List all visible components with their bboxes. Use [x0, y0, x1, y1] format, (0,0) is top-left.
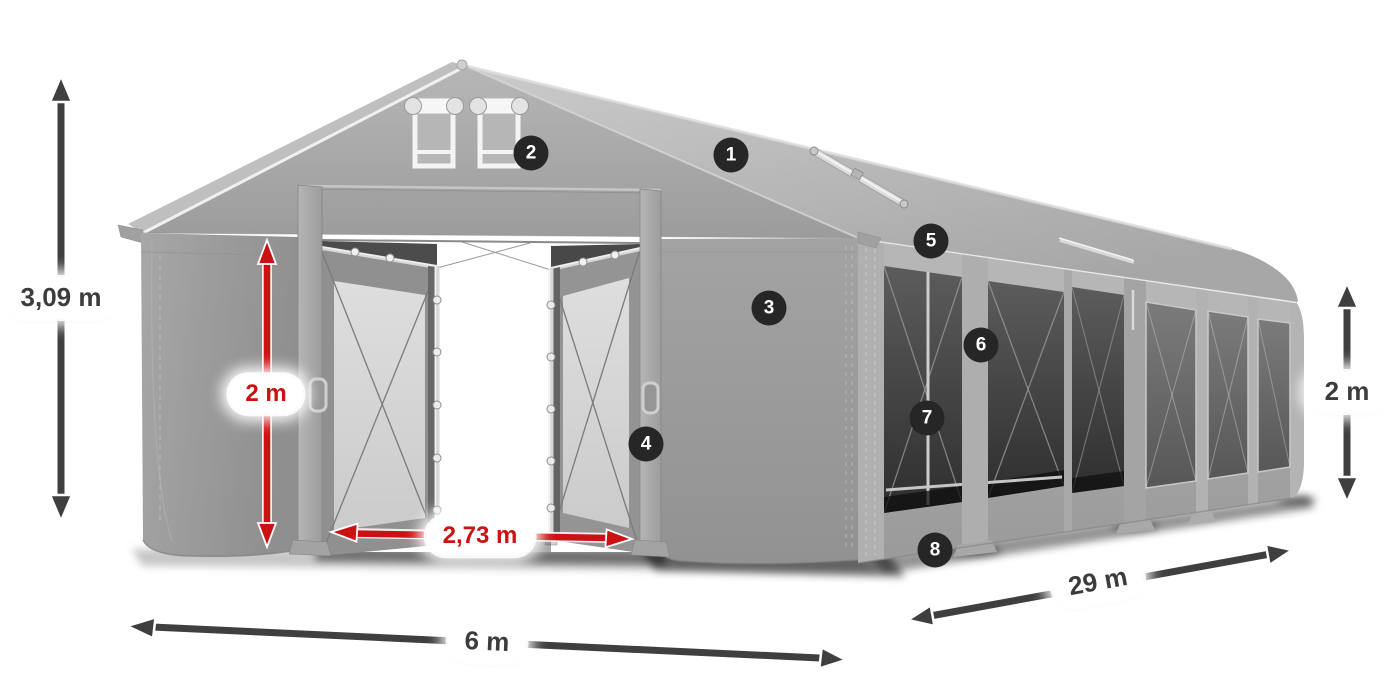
entrance-right-door [545, 247, 640, 553]
side-window [1208, 311, 1248, 479]
part-marker-1[interactable]: 1 [714, 138, 749, 173]
tent-product-view: 3,09 m 2 m 2,73 m 6 m 29 m 2 m 1 2 3 4 5… [0, 0, 1400, 700]
mesh-panel-bay-1 [884, 266, 962, 513]
part-marker-7[interactable]: 7 [910, 401, 945, 436]
door-latch [643, 383, 658, 413]
side-post [1064, 268, 1072, 533]
section-joint-band [1124, 277, 1146, 524]
part-marker-5[interactable]: 5 [914, 224, 949, 259]
side-post [1248, 295, 1258, 507]
part-marker-2[interactable]: 2 [514, 136, 549, 171]
entrance-post-left [298, 185, 322, 553]
part-marker-6[interactable]: 6 [964, 328, 999, 363]
dimension-label-entrance-width: 2,73 m [427, 517, 534, 555]
side-post [1196, 288, 1208, 515]
mesh-panel-bay-3 [1072, 287, 1124, 493]
dimension-label-side-wall-height: 2 m [1309, 372, 1386, 412]
dimension-label-entrance-height: 2 m [229, 375, 302, 413]
tent-illustration [0, 0, 1400, 700]
entrance [322, 241, 640, 556]
side-window [1146, 302, 1196, 488]
dimension-label-total-height: 3,09 m [5, 278, 118, 318]
dimension-label-width: 6 m [448, 620, 527, 663]
mesh-panel-bay-2 [988, 281, 1064, 498]
side-post [962, 253, 988, 548]
part-marker-4[interactable]: 4 [629, 427, 664, 462]
entrance-left-door [322, 247, 443, 556]
part-marker-8[interactable]: 8 [918, 533, 953, 568]
roof-vent [405, 98, 464, 167]
end-corner [1290, 301, 1304, 498]
front-right-wall [661, 238, 858, 564]
entrance-post-right [640, 189, 661, 552]
door-latch [310, 379, 326, 411]
side-window [1258, 319, 1290, 472]
part-marker-3[interactable]: 3 [752, 291, 787, 326]
corner-post [858, 238, 884, 563]
